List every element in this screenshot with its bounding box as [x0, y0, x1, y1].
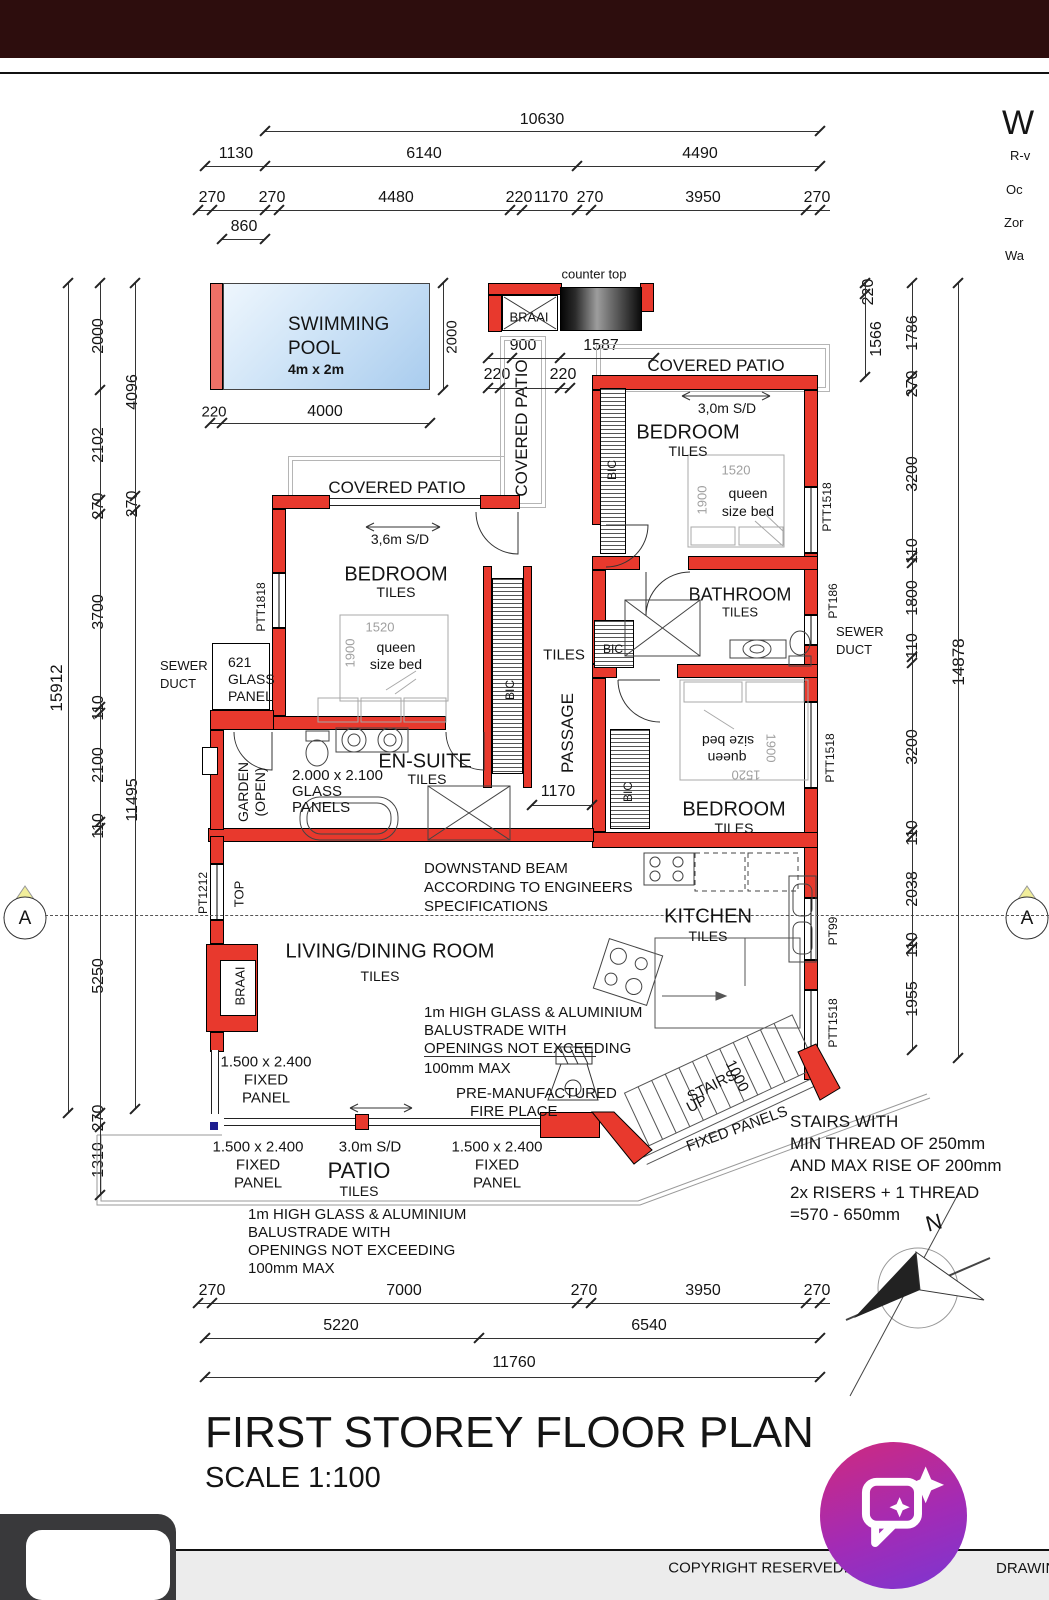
section-label: A [19, 908, 32, 930]
hob-plate [650, 857, 660, 867]
stairs-arrow-head [716, 992, 726, 1000]
stair-landing [655, 938, 800, 1028]
basin [743, 640, 771, 658]
hob-plate [673, 857, 683, 867]
note-line: 100mm MAX [424, 1060, 511, 1077]
note-line: 1.500 x 2.400 [452, 1139, 543, 1156]
floor-label: TILES [361, 968, 400, 984]
vanity [336, 728, 408, 752]
wall-diagonal [798, 1044, 840, 1100]
dim-line [912, 283, 913, 1050]
window-tag: PT99 [826, 917, 840, 946]
floor-plan-sheet: W R-v Oc Zor Wa 10630 1130 6140 4490 270… [0, 0, 1049, 1600]
floor-label: TILES [377, 584, 416, 600]
floor-label: TILES [408, 771, 447, 787]
shower-x [625, 600, 700, 656]
chat-sparkle-icon [820, 1442, 967, 1589]
basin-inner [348, 734, 360, 746]
top-label: TOP [232, 881, 247, 908]
sewer-duct-label: DUCT [836, 642, 872, 657]
page-scale: SCALE 1:100 [205, 1462, 381, 1495]
braai-label: BRAAI [233, 966, 248, 1005]
sliding-door-arrow [682, 392, 770, 400]
note-line: PANEL [242, 1090, 290, 1107]
hob-plate [650, 871, 660, 881]
note-line: 100mm MAX [248, 1260, 335, 1277]
door-swing [618, 680, 660, 722]
compass [846, 1198, 990, 1396]
room-label: LIVING/DINING ROOM [286, 941, 495, 964]
bed-label: queen [708, 750, 747, 766]
bed-fold [386, 671, 416, 694]
note-line: 1m HIGH GLASS & ALUMINIUM [248, 1206, 466, 1223]
dim-line [222, 239, 265, 240]
floor-label: TILES [669, 443, 708, 459]
pillow [691, 527, 735, 545]
dim-line [198, 1303, 830, 1304]
braai-x [504, 297, 556, 329]
shower-x [428, 786, 510, 840]
note-line: 1.500 x 2.400 [213, 1139, 304, 1156]
floor-label: TILES [340, 1183, 379, 1199]
counter-dashed [695, 853, 745, 891]
pillow [739, 527, 783, 545]
note-line: PRE-MANUFACTURED [456, 1085, 617, 1102]
bed-dim: 1900 [764, 734, 779, 763]
note-line: PANEL [234, 1175, 282, 1192]
window-tag: PT1212 [196, 872, 210, 914]
sparkle-small [890, 1497, 910, 1517]
dim-line [958, 283, 959, 1058]
sparkle-large [907, 1467, 944, 1504]
note-line: FIRE PLACE [470, 1103, 558, 1120]
bed-dim: 1520 [722, 463, 751, 478]
sewer-duct-label: SEWER [836, 624, 884, 639]
vanity [730, 640, 786, 658]
pillow [318, 698, 358, 722]
note-line: FIXED [236, 1157, 280, 1174]
sink-bowl [793, 884, 812, 916]
bed-fold [704, 710, 734, 729]
door-swing [476, 512, 518, 554]
window-tag: PTT1818 [254, 582, 268, 631]
room-label: BEDROOM [682, 799, 785, 822]
room-label: BEDROOM [636, 422, 739, 445]
room-label: BATHROOM [689, 585, 792, 606]
note-line: AND MAX RISE OF 200mm [790, 1156, 1002, 1176]
bic-label: BIC [503, 680, 517, 700]
toilet-tank [306, 731, 329, 741]
pillow [404, 698, 446, 722]
bed-label: queen [729, 485, 768, 501]
door-swing [606, 525, 648, 567]
note-line: 1m HIGH GLASS & ALUMINIUM [424, 1004, 642, 1021]
dim-line [443, 283, 444, 390]
room-label: PATIO [328, 1158, 391, 1184]
sewer-duct-label: DUCT [160, 676, 196, 691]
bed-label: size bed [722, 503, 774, 519]
note-line: PANEL [473, 1175, 521, 1192]
plan-linework [0, 0, 1049, 1600]
page-title: FIRST STOREY FLOOR PLAN [205, 1408, 814, 1458]
basin-inner [750, 645, 764, 653]
note-line: 2.000 x 2.100 [292, 767, 383, 784]
note-line: BALUSTRADE WITH [424, 1022, 567, 1039]
sliding-door-label: 3,0m S/D [698, 400, 756, 416]
bottom-left-card[interactable] [26, 1530, 170, 1600]
floor-label: TILES [722, 605, 758, 620]
floor-label: TILES [543, 647, 585, 664]
note-line: GLASS [228, 671, 275, 687]
counter-dashed [748, 853, 798, 891]
bed-dim: 1900 [343, 639, 358, 668]
pillow [361, 698, 401, 722]
room-label: PASSAGE [558, 693, 578, 773]
dim-line [205, 166, 820, 167]
note-line: 621 [228, 654, 251, 670]
dim-line [532, 805, 592, 806]
note-line: BALUSTRADE WITH [248, 1224, 391, 1241]
wall-diagonal [592, 1112, 652, 1164]
room-label: GARDEN [235, 762, 251, 822]
note-underline [424, 1056, 596, 1057]
window-tag: PTT1518 [823, 733, 837, 782]
chat-fab[interactable] [820, 1442, 967, 1589]
bed-dim: 1520 [366, 620, 395, 635]
sewer-duct-label: SEWER [160, 658, 208, 673]
bed-label: queen [377, 639, 416, 655]
toilet [790, 631, 810, 655]
sliding-door-arrow [350, 1104, 412, 1112]
dim-line [205, 1377, 820, 1378]
dim-line [265, 131, 820, 132]
dim-line [100, 283, 101, 1195]
note-line: 1.500 x 2.400 [221, 1054, 312, 1071]
bic-label: BIC [603, 642, 623, 656]
note-line: FIXED [475, 1157, 519, 1174]
toilet-tank [789, 656, 811, 666]
note-line: 2x RISERS + 1 THREAD [790, 1183, 979, 1203]
room-label: KITCHEN [664, 906, 752, 929]
basin [342, 728, 366, 752]
toilet [306, 740, 328, 766]
bic-label: BIC [621, 782, 635, 802]
dim-line [210, 423, 430, 424]
floor-label: TILES [689, 928, 728, 944]
note-line: ACCORDING TO ENGINEERS [424, 879, 633, 896]
window-tag: PTT1518 [820, 482, 834, 531]
note-line: SPECIFICATIONS [424, 898, 548, 915]
basin-inner [384, 734, 396, 746]
dim-label: 1170 [541, 783, 575, 801]
bed-dim: 1520 [732, 768, 761, 783]
door-swing [646, 572, 690, 616]
bed-label: size bed [370, 656, 422, 672]
note-line: =570 - 650mm [790, 1205, 900, 1225]
section-line [45, 915, 1049, 916]
sliding-door-arrow [366, 523, 440, 531]
dim-line [198, 210, 830, 211]
floor-label: TILES [715, 820, 754, 836]
note-line: MIN THREAD OF 250mm [790, 1134, 985, 1154]
note-line: OPENINGS NOT EXCEEDING [248, 1242, 455, 1259]
pillow [684, 682, 742, 702]
note-line: OPENINGS NOT EXCEEDING [424, 1040, 631, 1057]
note-line: GLASS [292, 783, 342, 800]
dim-line [205, 1338, 820, 1339]
bic-label: BIC [605, 460, 619, 480]
note-line: PANEL [228, 688, 273, 704]
note-line: PANELS [292, 799, 350, 816]
window-tag: PT186 [826, 583, 840, 618]
corner-stove [593, 939, 662, 1006]
window-tag: PTT1518 [826, 998, 840, 1047]
section-label: A [1021, 908, 1034, 930]
note-line: DOWNSTAND BEAM [424, 860, 568, 877]
room-label: (OPEN) [252, 768, 268, 817]
dim-line [135, 283, 136, 1109]
dim-line [68, 283, 69, 1113]
bed-label: size bed [702, 733, 754, 749]
note-line: FIXED [244, 1072, 288, 1089]
footer-drawing-label: DRAWIN [996, 1560, 1049, 1577]
sliding-door-label: 3,6m S/D [371, 531, 429, 547]
basin [378, 728, 402, 752]
bed-dim: 1900 [695, 486, 710, 515]
sliding-door-label: 3.0m S/D [339, 1139, 402, 1156]
pillow [746, 682, 804, 702]
hob-plate [673, 871, 683, 881]
dim-line [865, 283, 866, 377]
note-line: STAIRS WITH [790, 1112, 898, 1132]
